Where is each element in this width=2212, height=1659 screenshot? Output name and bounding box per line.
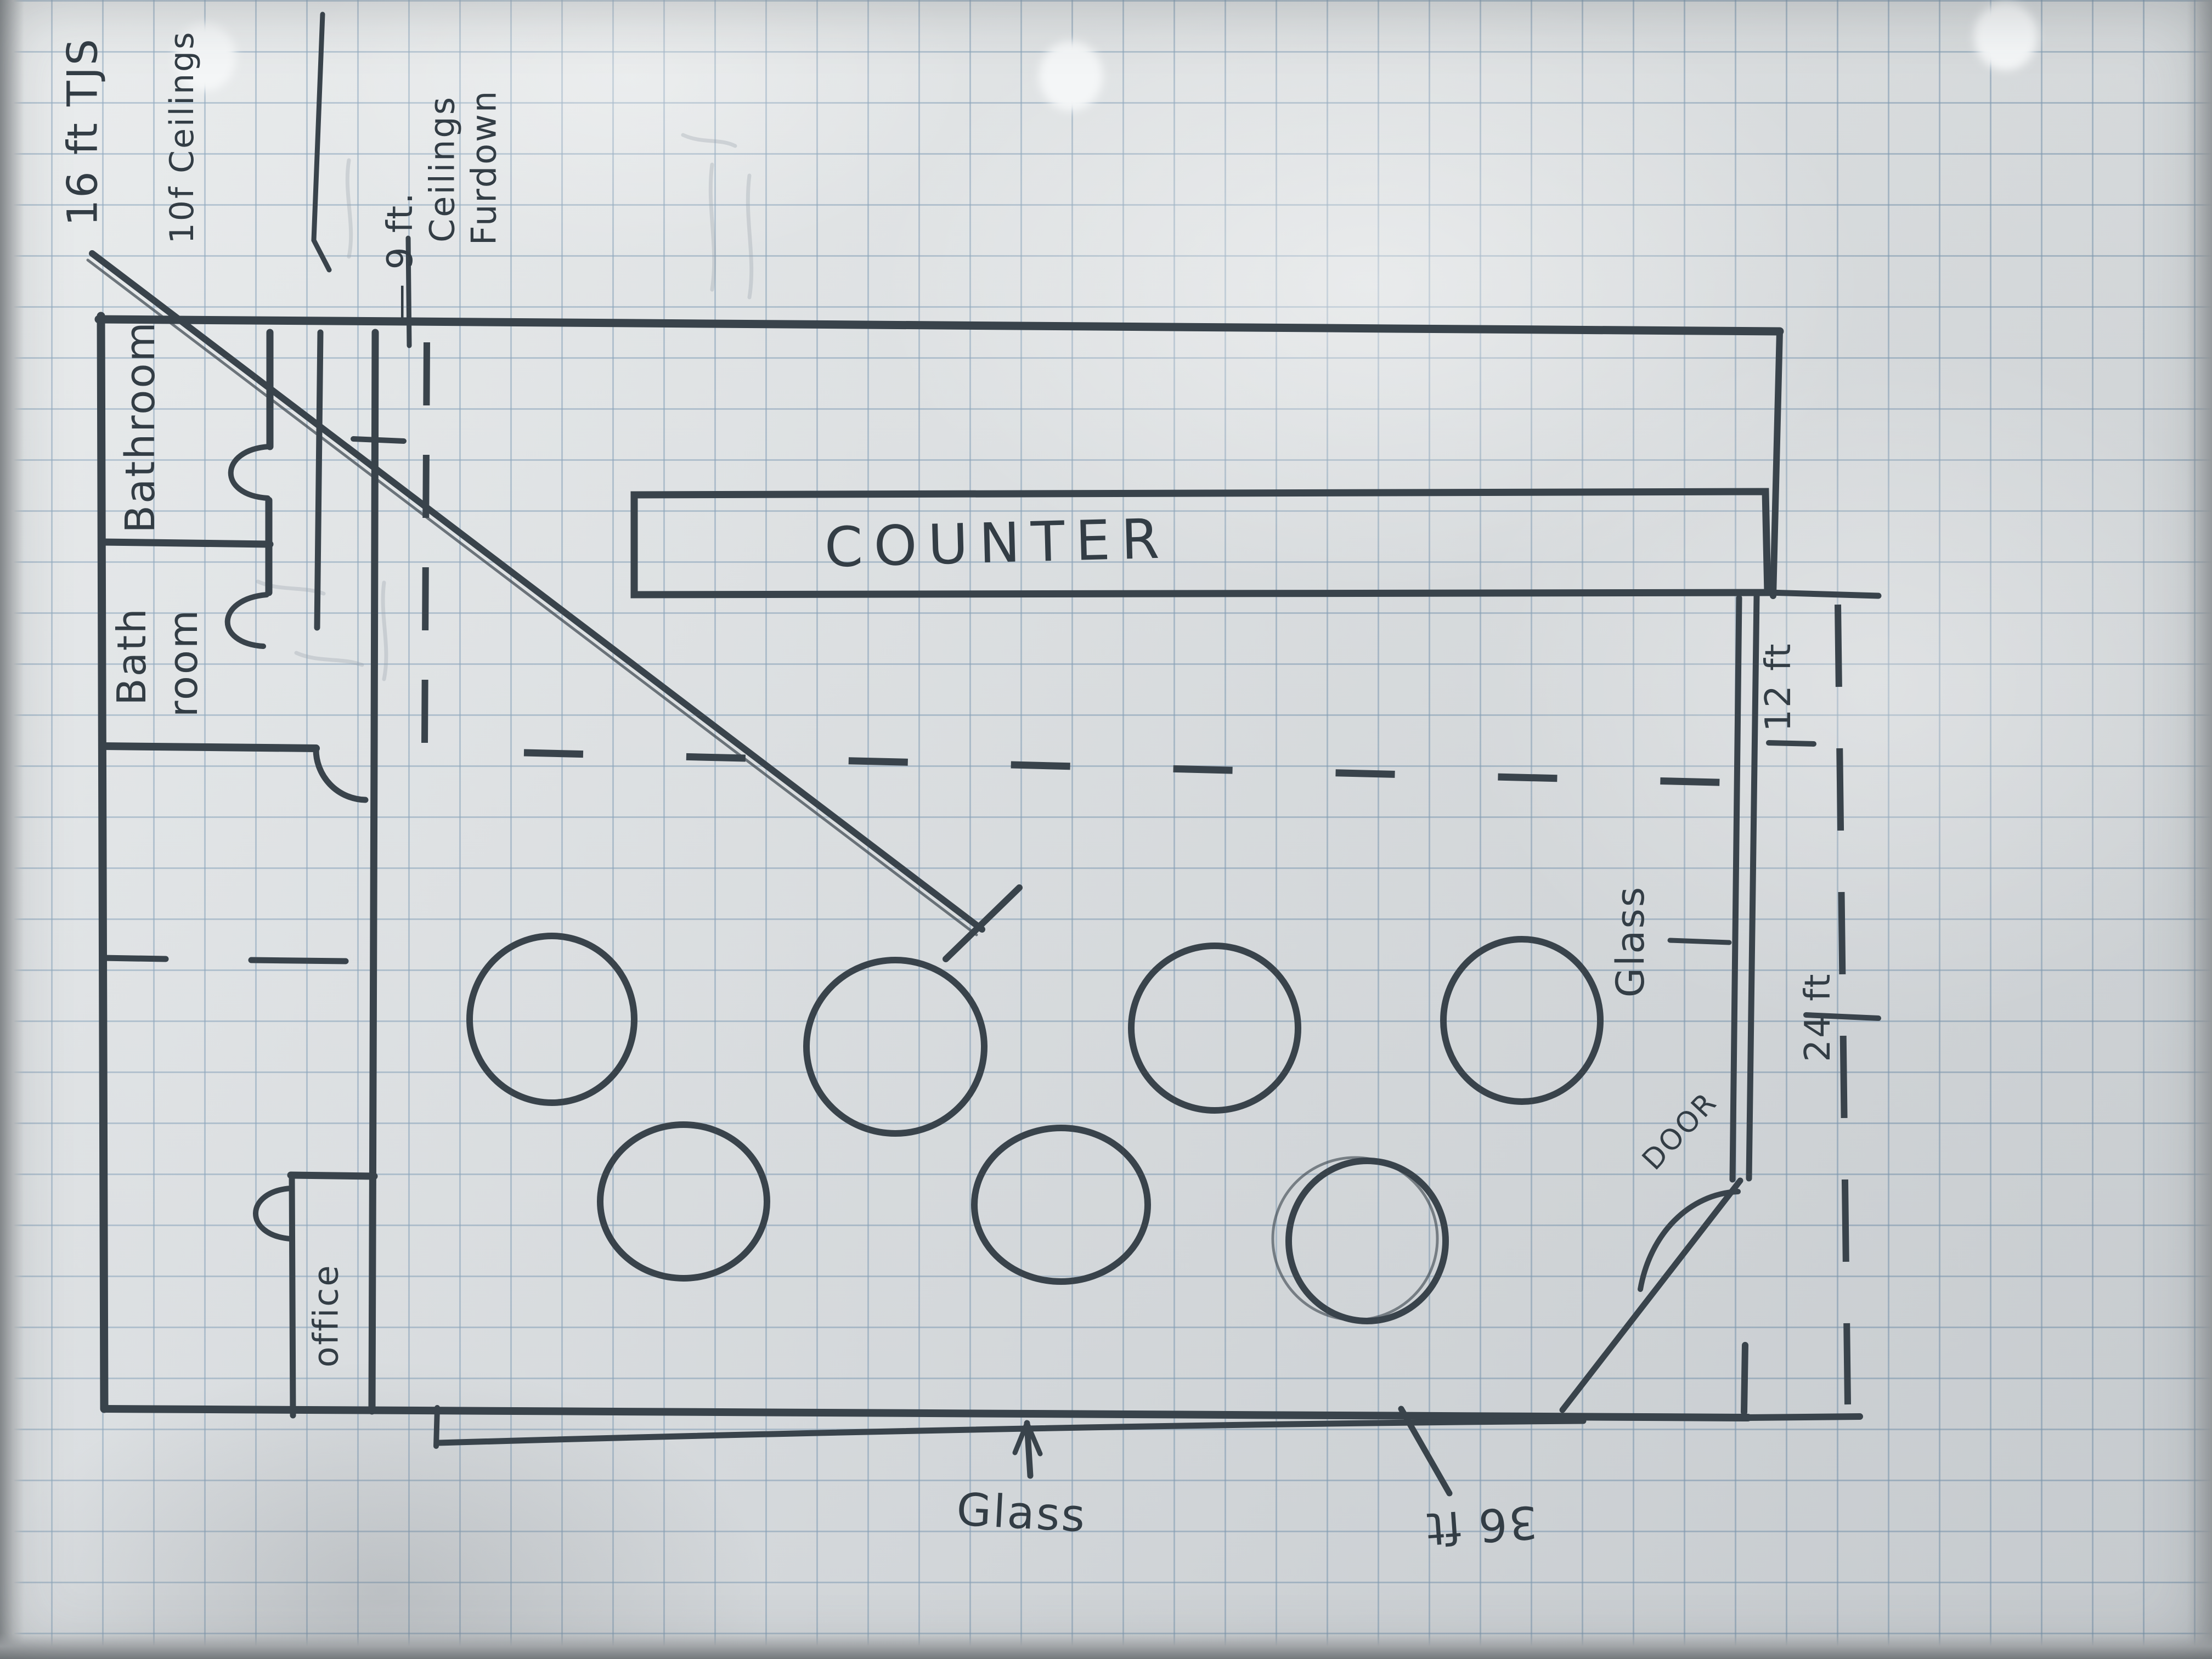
service-dashed-wall	[425, 342, 427, 745]
bottom-wall-extension	[1748, 1417, 1860, 1418]
hall-wall-inner	[317, 332, 320, 628]
hole-punch	[1039, 41, 1103, 111]
glass-side-tick	[1670, 940, 1729, 943]
right-wall-lower	[1744, 1345, 1745, 1412]
office-left-wall	[292, 1175, 293, 1415]
office-door-arc	[256, 1188, 291, 1239]
bathroom-top-door-arc	[231, 447, 269, 498]
bathroom-bottom-door-arc	[228, 595, 267, 646]
dim-side-depth-label: 24 ft	[1798, 972, 1838, 1062]
entry-door-leaf	[1562, 1181, 1740, 1410]
dim-12ft-tick	[1769, 743, 1814, 744]
annotation-ceilings-10ft: 10f Ceilings	[163, 31, 201, 244]
floor-plan-photo: 16 ft TJS 10f Ceilings — 9 ft. Ceilings …	[0, 0, 2212, 1659]
counter-outline	[634, 492, 1768, 595]
annotation-ceilings-9ft-line3: Furdown	[464, 89, 504, 245]
bottom-wall	[104, 1409, 1748, 1418]
room-label-bathroom-bottom-line1: Bath	[109, 607, 155, 705]
side-dashed-boundary	[1838, 605, 1848, 1404]
corridor-door-arc	[316, 748, 365, 800]
bathroom-block-bottom-wall	[102, 746, 316, 748]
corridor-dash-2	[251, 960, 346, 961]
table-circle	[806, 960, 984, 1133]
joist-leader-end-cross	[946, 888, 1019, 959]
annotation-joists: 16 ft TJS	[58, 37, 107, 226]
floor-plan-drawing	[0, 0, 2212, 1659]
paper-right-edge	[2187, 0, 2212, 1659]
left-wall	[101, 316, 104, 1409]
room-label-bathroom-bottom-line2: room	[160, 608, 206, 717]
furdown-dashed-line	[524, 753, 1761, 783]
table-circle	[1131, 946, 1298, 1110]
office-top-wall	[291, 1175, 374, 1176]
hall-wall-outer	[374, 332, 375, 747]
paper-bottom-edge	[0, 1634, 2212, 1659]
annotation-divider-line	[314, 14, 329, 270]
table-circle	[470, 936, 634, 1103]
annotation-ceilings-9ft-line1: — 9 ft.	[380, 191, 421, 319]
table-circle	[1289, 1161, 1446, 1321]
annotation-ceilings-9ft-line2: Ceilings	[422, 95, 462, 242]
dim-side-width-label: 12 ft	[1758, 642, 1799, 731]
storefront-glass-jamb	[436, 1408, 437, 1446]
glass-side-label: Glass	[1608, 885, 1653, 998]
right-glass-wall-inner	[1733, 598, 1739, 1180]
hole-punch	[1974, 2, 2038, 70]
hall-wall-tick	[353, 439, 404, 441]
table-circle	[1443, 939, 1600, 1102]
right-glass-wall-outer	[1749, 596, 1757, 1178]
paper-left-edge	[0, 0, 24, 1659]
dim-storefront-label: 36 ft	[1423, 1495, 1539, 1555]
table-circle	[600, 1125, 767, 1278]
top-wall	[99, 319, 1780, 331]
table-circle	[974, 1128, 1148, 1282]
table-circle-echo	[1273, 1158, 1437, 1320]
dashed-lines	[102, 342, 1848, 1404]
room-label-office: office	[306, 1263, 346, 1367]
tables	[470, 936, 1600, 1321]
right-wall-upper	[1773, 331, 1780, 596]
bathroom-divider-wall	[102, 542, 270, 544]
side-box-top-line	[1768, 592, 1878, 596]
room-label-bathroom-top: Bathroom	[117, 320, 164, 533]
counter-label: COUNTER	[823, 506, 1171, 579]
service-wall-lower	[372, 747, 374, 1411]
hole-punches	[174, 2, 2038, 111]
glass-front-label: Glass	[955, 1483, 1088, 1542]
walls	[99, 316, 1878, 1446]
corridor-dash-1	[102, 958, 166, 959]
